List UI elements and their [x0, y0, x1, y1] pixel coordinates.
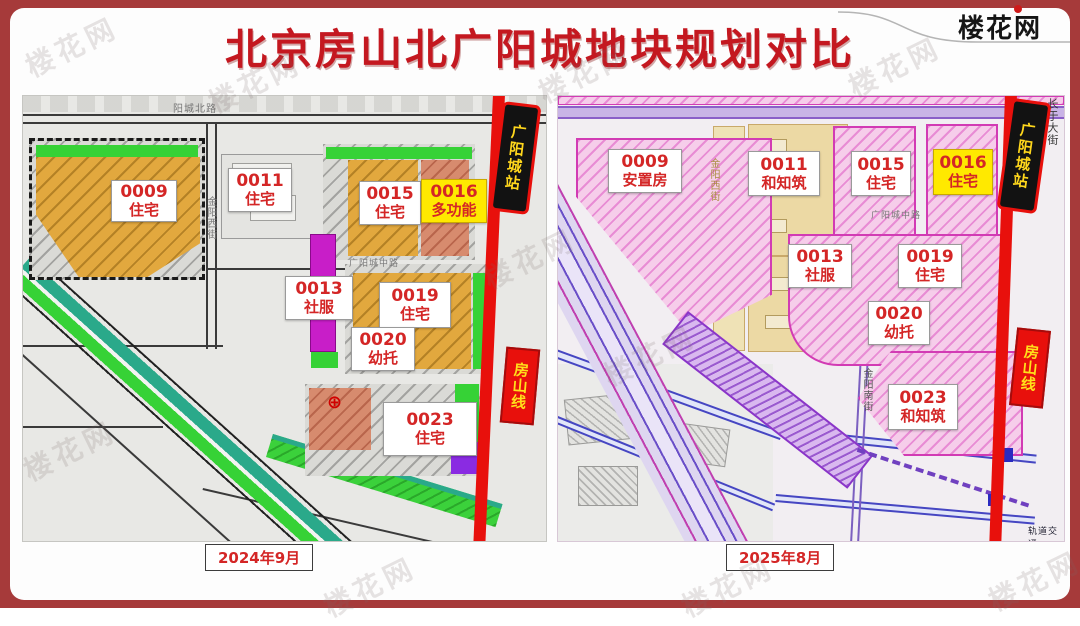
existing-block — [578, 466, 638, 506]
parcel-use: 住宅 — [245, 191, 275, 208]
greenbelt-patch — [311, 352, 338, 368]
north-parcels-strip — [558, 96, 1064, 105]
parcel-id: 0015 — [366, 185, 413, 204]
parcel-id: 0009 — [621, 153, 668, 172]
logo-text: 楼花网 — [958, 14, 1042, 44]
landmark-circle-icon: ⊕ — [327, 392, 342, 413]
parcel-label-0009: 0009 安置房 — [608, 149, 682, 193]
parcel-id: 0013 — [295, 280, 342, 299]
parcel-use: 社服 — [805, 267, 835, 284]
line-badge-fangshan: 房山线 — [1009, 327, 1051, 408]
parcel-id: 0009 — [120, 183, 167, 202]
rail-transit-note: 轨道交通 — [1028, 524, 1064, 542]
parcel-use: 安置房 — [622, 172, 667, 189]
street-label-north: 阳城北路 — [173, 100, 217, 115]
parcel-use: 幼托 — [368, 350, 398, 367]
parcel-use: 和知筑 — [900, 408, 945, 425]
parcel-id: 0016 — [430, 183, 477, 202]
street-label-south: 金阳南街 — [859, 368, 874, 412]
parcel-label-0016: 0016 多功能 — [421, 179, 487, 223]
parcel-label-0011: 0011 住宅 — [228, 168, 292, 212]
parcel-label-0023: 0023 住宅 — [383, 402, 477, 456]
parcel-id: 0019 — [391, 287, 438, 306]
page-frame: 北京房山北广阳城地块规划对比 楼花网 楼花网 楼花网 楼花网 楼花网 楼花网 楼… — [0, 0, 1080, 608]
street-label-middle: 广阳城中路 — [349, 256, 399, 269]
buildings-texture — [23, 96, 546, 112]
road-north — [558, 106, 1064, 119]
parcel-use: 住宅 — [375, 204, 405, 221]
road-lower-2 — [23, 426, 163, 428]
right-map-date: 2025年8月 — [726, 544, 834, 571]
parcel-label-0023: 0023 和知筑 — [888, 384, 958, 430]
parcel-use: 住宅 — [948, 173, 978, 190]
parcel-use: 社服 — [304, 299, 334, 316]
parcel-label-0020: 0020 幼托 — [351, 327, 415, 371]
parcel-label-0013: 0013 社服 — [788, 244, 852, 288]
greenbelt-strip — [326, 147, 472, 159]
line-badge-fangshan: 房山线 — [500, 347, 540, 426]
right-map-2025: 长于大街 金阳西街 广阳城中路 金阳南街 轨道交通 广阳城站 房山线 0009 … — [557, 95, 1065, 542]
parcel-id: 0023 — [406, 411, 453, 430]
logo-registered-dot-icon — [1014, 5, 1022, 13]
left-map-date: 2024年9月 — [205, 544, 313, 571]
street-label-west: 金阳西街 — [706, 158, 721, 202]
street-label-middle: 广阳城中路 — [871, 208, 921, 221]
parcel-id: 0015 — [857, 156, 904, 175]
parcel-use: 住宅 — [915, 267, 945, 284]
parcel-id: 0013 — [796, 248, 843, 267]
logo-louhuawang: 楼花网 — [958, 8, 1042, 45]
parcel-label-0019: 0019 住宅 — [379, 282, 451, 328]
parcel-id: 0019 — [906, 248, 953, 267]
parcel-label-0009: 0009 住宅 — [111, 180, 177, 222]
parcel-use: 住宅 — [400, 306, 430, 323]
parcel-id: 0011 — [236, 172, 283, 191]
parcel-0023-mixed-area: ⊕ — [309, 388, 371, 450]
road-north — [23, 114, 546, 116]
parcel-label-0015: 0015 住宅 — [851, 151, 911, 196]
parcel-label-0020: 0020 幼托 — [868, 301, 930, 345]
parcel-use: 幼托 — [884, 324, 914, 341]
street-label-west: 金阳西街 — [203, 196, 218, 240]
left-map-2024: 阳城北路 金阳西街 广阳城中路 — [22, 95, 547, 542]
parcel-use: 住宅 — [129, 202, 159, 219]
parcel-use: 住宅 — [415, 430, 445, 447]
parcel-use: 多功能 — [431, 202, 476, 219]
road-north-2 — [23, 122, 546, 124]
parcel-label-0013: 0013 社服 — [285, 276, 353, 320]
parcel-use: 和知筑 — [761, 175, 806, 192]
parcel-label-0011: 0011 和知筑 — [748, 151, 820, 196]
greenbelt-strip — [36, 145, 198, 157]
parcel-label-0019: 0019 住宅 — [898, 244, 962, 288]
parcel-id: 0023 — [899, 389, 946, 408]
parcel-id: 0020 — [359, 331, 406, 350]
parcel-id: 0020 — [875, 305, 922, 324]
parcel-label-0015: 0015 住宅 — [359, 181, 421, 225]
parcel-use: 住宅 — [866, 175, 896, 192]
parcel-id: 0016 — [939, 154, 986, 173]
parcel-label-0016: 0016 住宅 — [933, 149, 993, 195]
parcel-id: 0011 — [760, 156, 807, 175]
